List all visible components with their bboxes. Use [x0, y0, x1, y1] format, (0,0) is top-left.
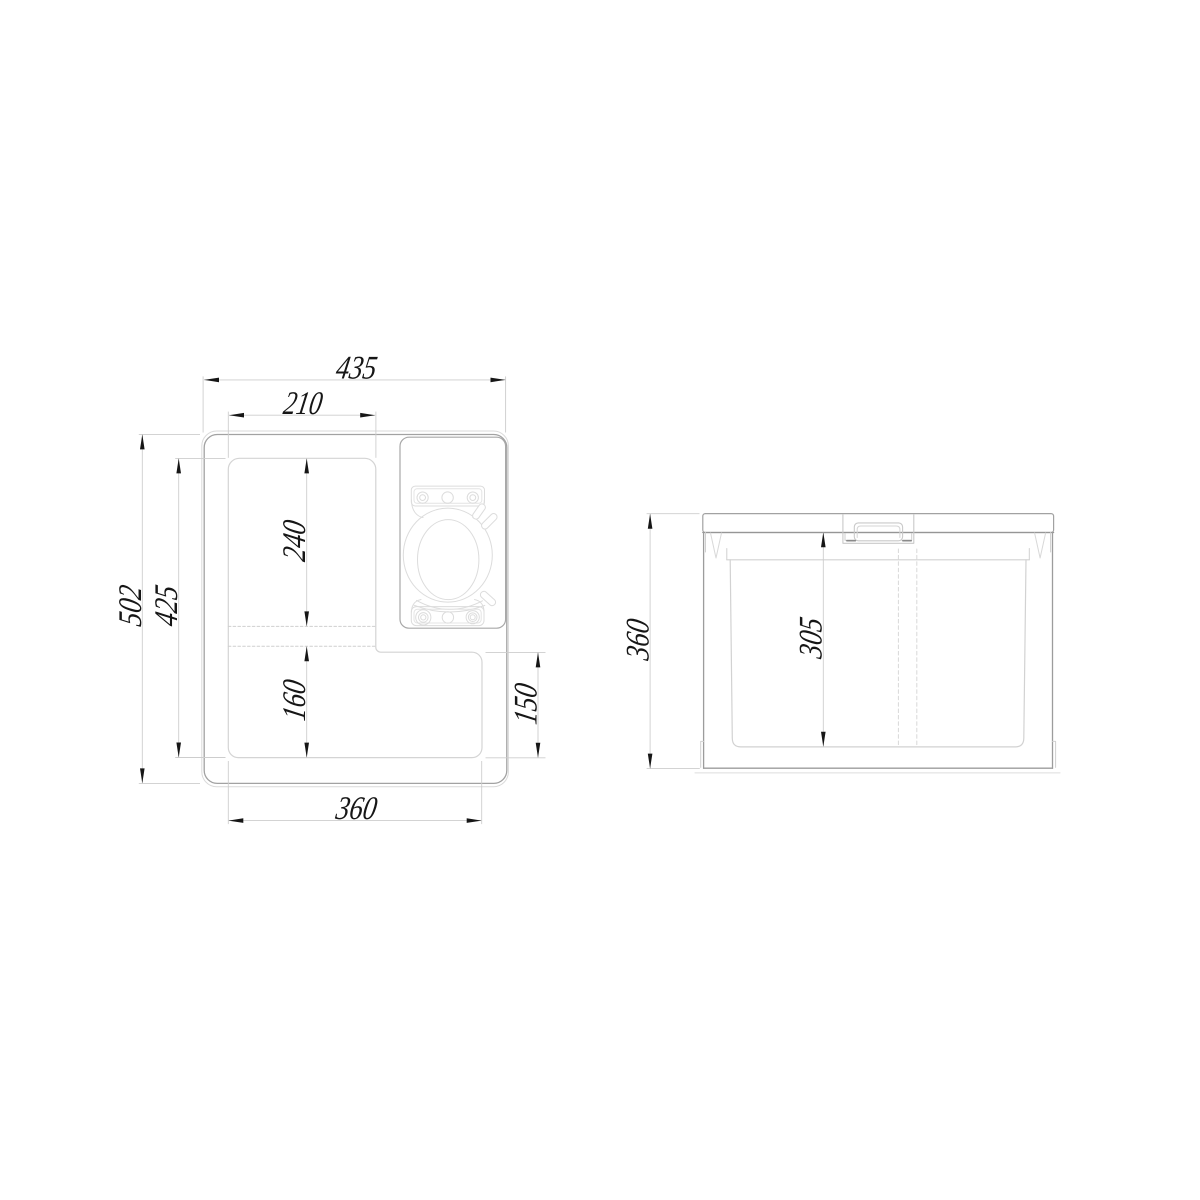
svg-text:435: 435	[333, 350, 379, 387]
svg-text:210: 210	[281, 385, 326, 422]
svg-text:502: 502	[112, 582, 149, 628]
svg-text:360: 360	[620, 616, 657, 664]
svg-text:360: 360	[333, 790, 381, 827]
svg-text:425: 425	[148, 582, 185, 628]
svg-text:305: 305	[793, 614, 830, 661]
svg-text:240: 240	[276, 517, 313, 564]
svg-text:150: 150	[508, 680, 545, 727]
svg-text:160: 160	[276, 677, 313, 724]
